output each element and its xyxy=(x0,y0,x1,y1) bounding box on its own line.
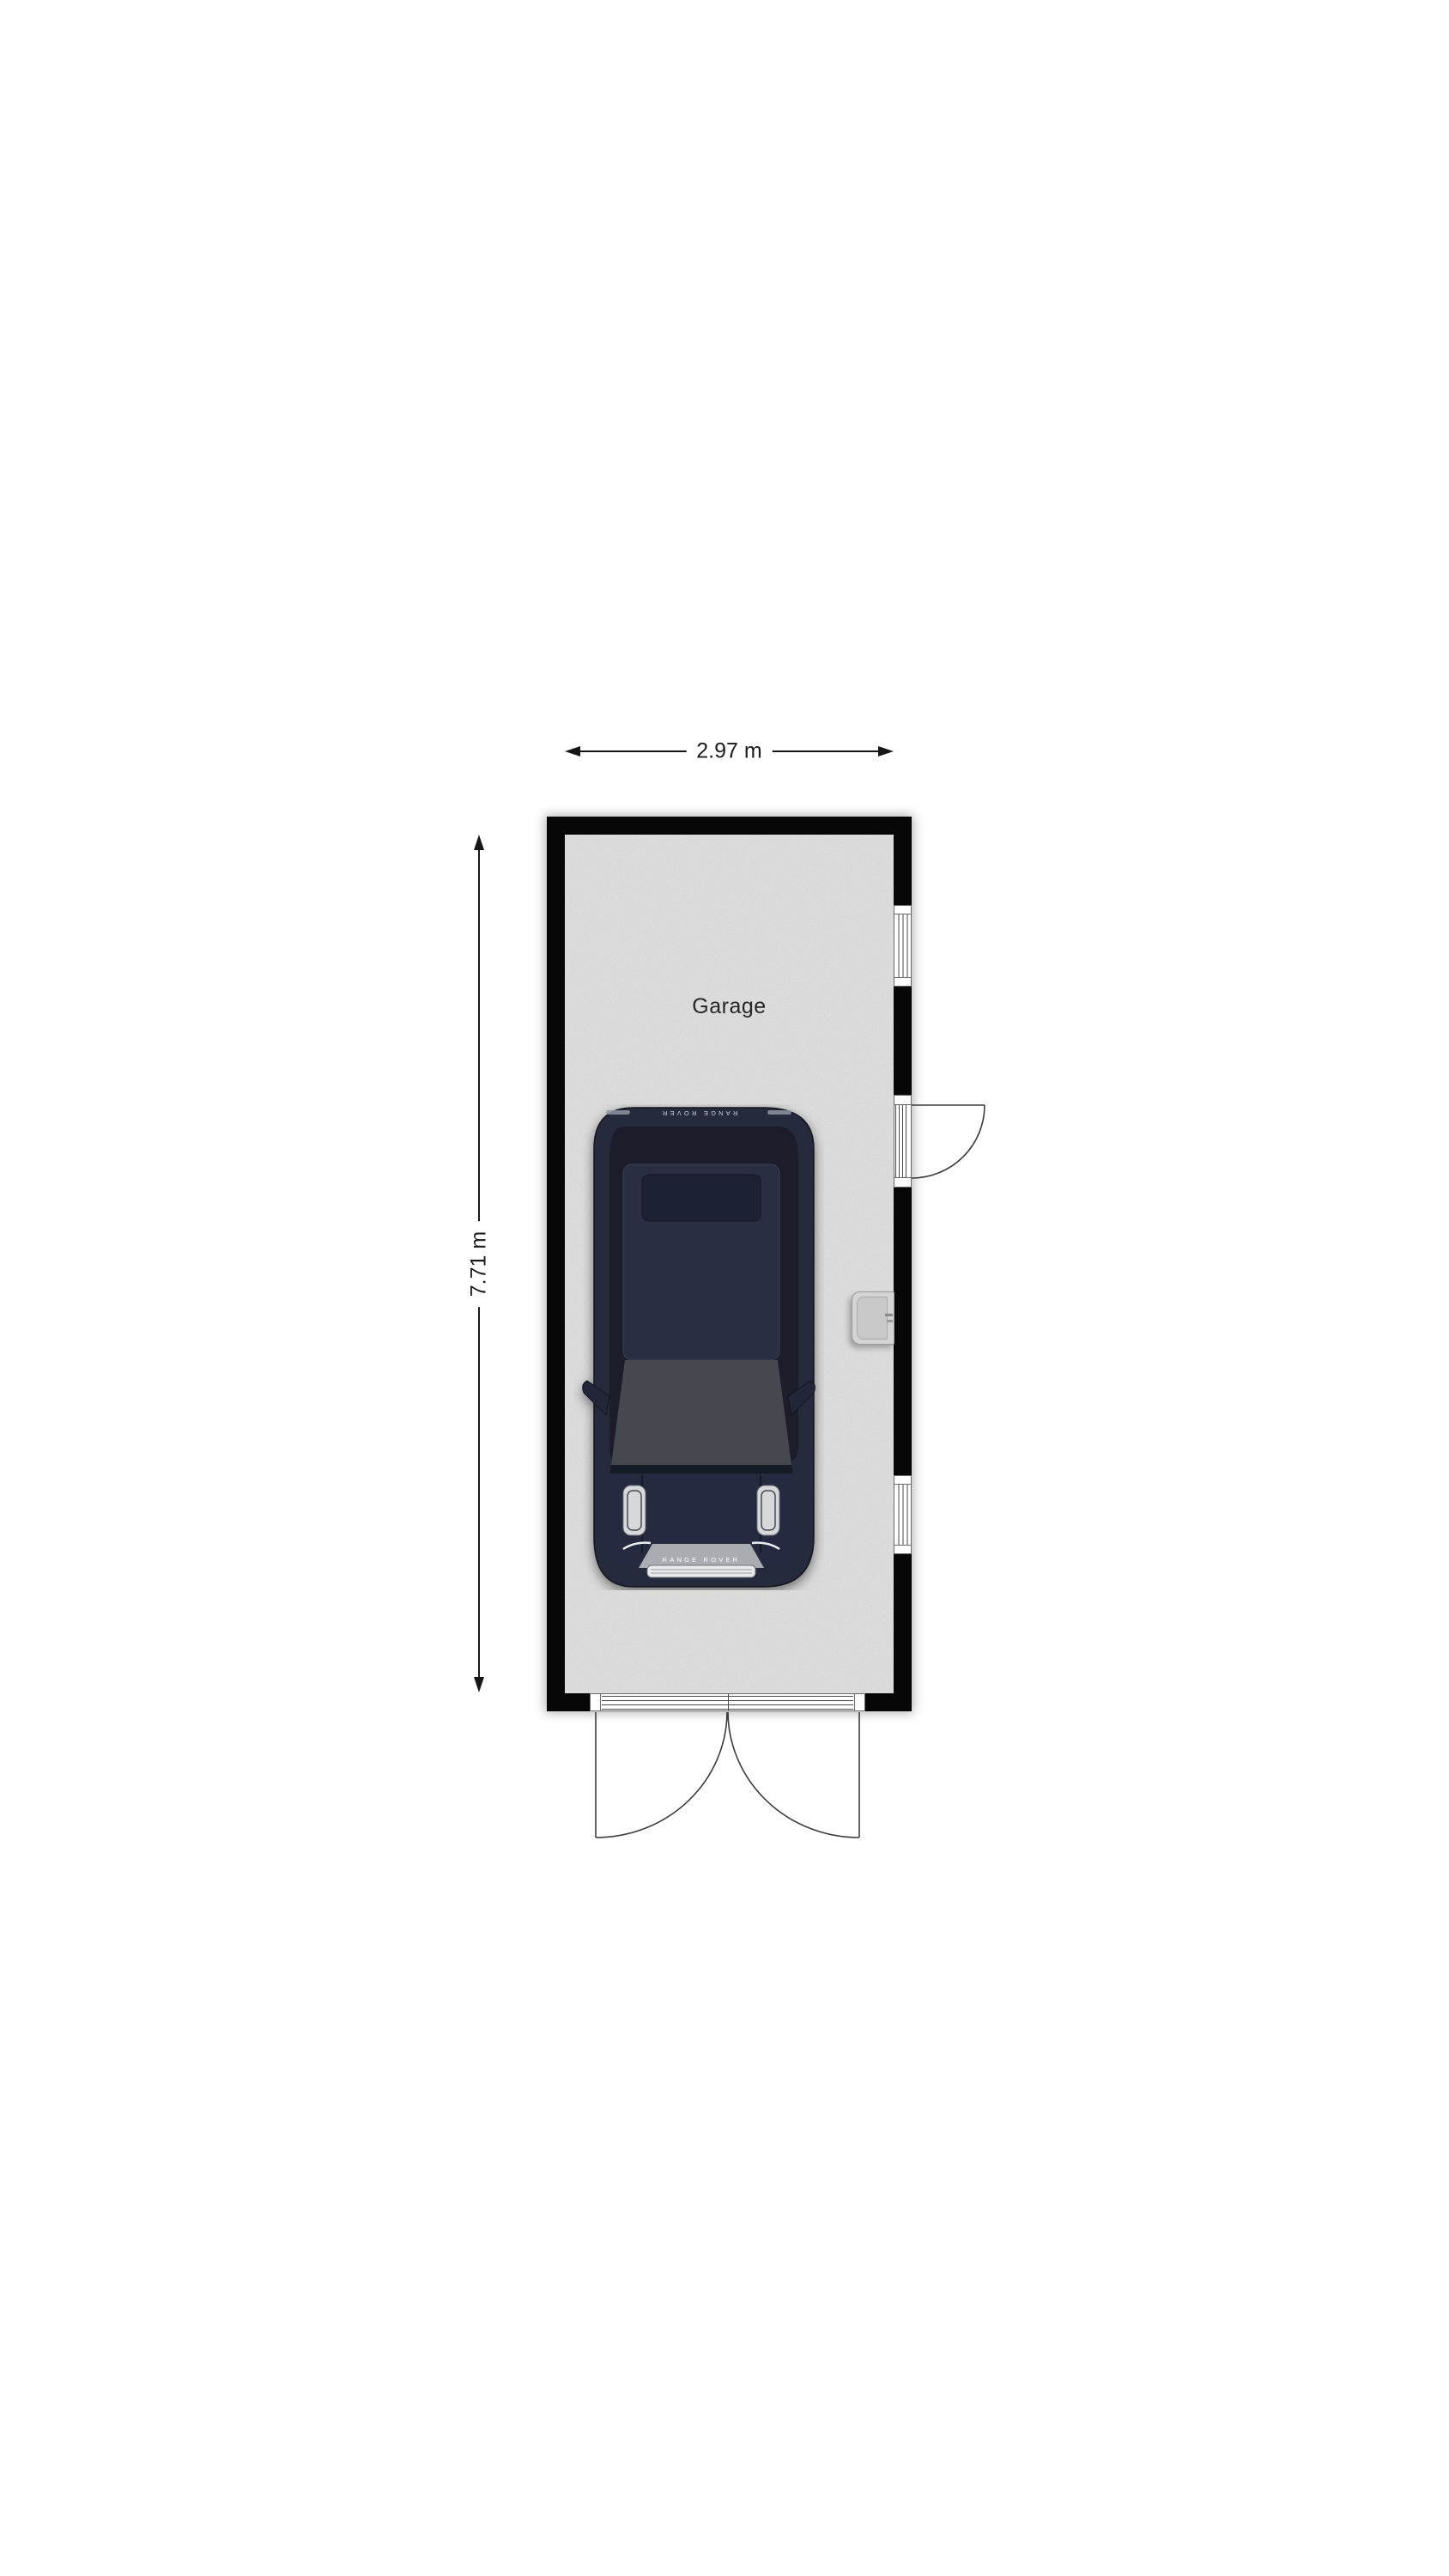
wall-right-segment-3 xyxy=(894,1188,912,1475)
wall-top xyxy=(547,817,912,835)
car-windshield xyxy=(611,1360,791,1465)
door-panel-closed xyxy=(895,1105,906,1177)
car-rear-badge: RANGE ROVER xyxy=(660,1109,738,1117)
window-frame-cap xyxy=(894,1545,912,1554)
door-frame-cap xyxy=(590,1693,601,1711)
car-cowl xyxy=(609,1465,793,1473)
room-label: Garage xyxy=(565,994,894,1019)
side-door-swing-arc xyxy=(912,1105,985,1178)
dimension-height-label: 7.71 m xyxy=(467,1220,492,1306)
wall-right-segment-1 xyxy=(894,817,912,905)
right-door-swing-arc xyxy=(728,1712,859,1838)
window-right-upper xyxy=(894,905,912,987)
floorplan-canvas: Garage xyxy=(0,0,1449,2576)
car-hood-vent-right xyxy=(757,1485,779,1535)
window-frame-cap xyxy=(894,1475,912,1485)
sink-tap xyxy=(887,1320,893,1322)
door-frame-cap xyxy=(854,1693,865,1711)
dimension-width-label: 2.97 m xyxy=(686,739,772,764)
wall-bottom-right-stub xyxy=(865,1693,912,1711)
wall-sink xyxy=(852,1291,894,1345)
window-frame-cap xyxy=(894,905,912,914)
dimension-width: 2.97 m xyxy=(565,740,894,762)
car-top-view: RANGE ROVER xyxy=(573,1104,824,1590)
car-front-badge: RANGE ROVER xyxy=(663,1556,741,1564)
double-door-bottom xyxy=(590,1693,865,1711)
arrow-left-icon xyxy=(565,746,580,756)
door-frame-cap xyxy=(894,1095,912,1105)
side-door-right xyxy=(894,1095,912,1188)
door-meeting-stile xyxy=(728,1694,729,1710)
arrow-up-icon xyxy=(474,835,484,850)
wall-right-segment-2 xyxy=(894,987,912,1095)
car-hood-vent-left xyxy=(623,1485,646,1535)
wall-bottom-left-stub xyxy=(547,1693,590,1711)
window-glazing xyxy=(898,1485,907,1545)
left-door-swing-arc xyxy=(596,1712,727,1838)
window-right-lower xyxy=(894,1475,912,1554)
sink-tap xyxy=(885,1314,893,1316)
arrow-right-icon xyxy=(878,746,894,756)
wall-left xyxy=(547,817,565,1711)
arrow-down-icon xyxy=(474,1677,484,1692)
car-grille xyxy=(647,1565,755,1577)
wall-right-segment-4 xyxy=(894,1554,912,1711)
window-glazing xyxy=(898,914,907,977)
sink-basin xyxy=(857,1297,888,1340)
taillight-left xyxy=(606,1110,630,1115)
window-frame-cap xyxy=(894,977,912,987)
taillight-right xyxy=(767,1110,791,1115)
car-sunroof xyxy=(642,1175,761,1221)
dimension-height: 7.71 m xyxy=(468,835,490,1692)
door-frame-cap xyxy=(894,1177,912,1188)
